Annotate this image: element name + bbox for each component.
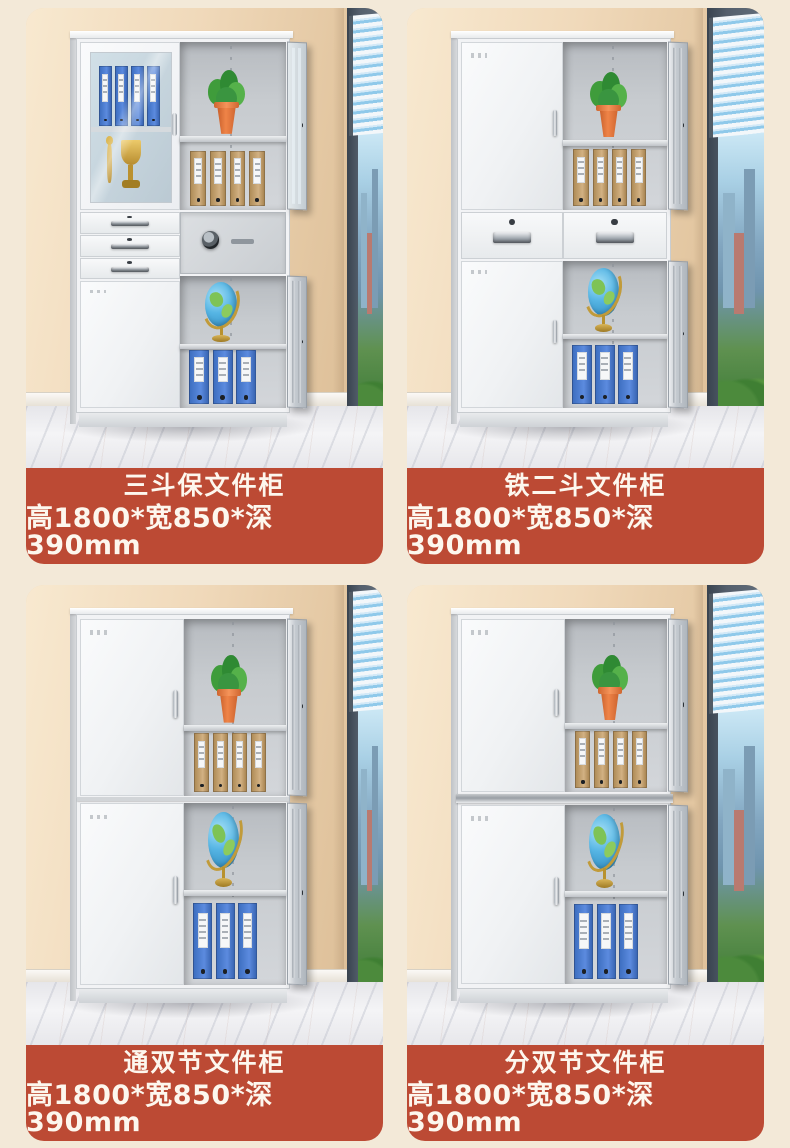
cabinet-open-compartment (184, 619, 286, 796)
safe-dial-icon (202, 231, 220, 249)
door-inner-ridge (298, 48, 301, 204)
binder-label (579, 738, 586, 765)
globe-land (208, 291, 224, 309)
binder-label-lines (237, 746, 242, 763)
binder-label (597, 157, 604, 183)
window-frame (347, 585, 383, 1004)
plant-foliage (592, 664, 611, 690)
trophy-base (122, 180, 140, 187)
binder-label-lines (256, 746, 261, 763)
globe-arc-stand (579, 807, 630, 876)
globe-land (591, 825, 608, 847)
wall (26, 585, 383, 1045)
file-binder-icon (99, 66, 112, 126)
door-inner-ridge (292, 48, 295, 204)
file-binder-icon (593, 149, 608, 206)
trophy-icon (104, 136, 149, 196)
file-binder-icon (232, 733, 247, 791)
door-inner-ridge (673, 811, 676, 978)
filing-cabinet (76, 608, 290, 1004)
binder-grommet (238, 784, 241, 787)
file-binder-icon (251, 733, 266, 791)
globe-icon (584, 268, 624, 333)
binder-label (577, 352, 587, 379)
city-building (372, 169, 378, 308)
plant-foliage (603, 655, 621, 684)
globe-land (222, 838, 237, 857)
potted-plant-icon (205, 70, 247, 134)
city-building (723, 769, 735, 885)
binder-grommet (581, 780, 584, 783)
binder-grommet (197, 395, 202, 400)
globe-stem (220, 326, 223, 336)
file-binder-icon (238, 903, 257, 979)
binder-label-lines (618, 743, 623, 760)
globe-land (590, 277, 606, 296)
product-title: 三斗保文件柜 (123, 473, 285, 498)
binder-label (102, 74, 108, 102)
window-city-view (358, 700, 383, 990)
globe-base (215, 878, 232, 887)
trophy-figurine-head (106, 136, 113, 144)
binder-label (217, 741, 224, 768)
binder-label-lines (598, 161, 603, 178)
binder-grommet (582, 969, 586, 973)
binder-grommet (637, 198, 640, 201)
binder-grommet (220, 395, 225, 400)
brand-mark-icon (90, 815, 106, 819)
lock-icon (301, 123, 303, 127)
plant-pot (598, 106, 620, 137)
cabinet-door-closed (80, 619, 184, 796)
cabinet-door-closed (80, 803, 184, 985)
binder-label-lines (243, 362, 250, 378)
window-blinds (349, 13, 383, 136)
baseboard (26, 392, 347, 406)
kraft-binders (190, 151, 269, 206)
product-label: 三斗保文件柜 高1800*宽850*深390mm (26, 468, 383, 564)
section-split-gap (456, 794, 673, 804)
binder-grommet (603, 395, 608, 400)
binder-label (600, 352, 610, 379)
cabinet-top-cap (70, 31, 294, 38)
cabinet-shelf (563, 140, 667, 146)
city-building (372, 746, 378, 885)
file-binder-icon (632, 731, 647, 788)
cabinet-door-open (287, 802, 307, 985)
city-trees (358, 931, 383, 989)
cabinet-shelf (563, 334, 667, 339)
cabinet-shelf (565, 891, 667, 897)
binder-grommet (638, 780, 641, 783)
binder-label-lines (603, 920, 610, 943)
file-binder-icon (572, 345, 591, 404)
cabinet-shelf (565, 723, 667, 729)
binder-grommet (599, 198, 602, 201)
cabinet-door-open (287, 42, 307, 211)
lock-icon (682, 702, 684, 706)
plant-foliage (230, 667, 247, 693)
product-dimensions: 高1800*宽850*深390mm (26, 505, 383, 559)
plant-pot-rim (596, 105, 621, 112)
door-inner-ridge (292, 280, 295, 403)
binder-label (198, 913, 208, 949)
cabinet-open-compartment (565, 805, 667, 985)
cabinet-plinth (79, 413, 287, 427)
file-binder-icon (190, 151, 206, 206)
baseboard (407, 969, 707, 983)
city-building (361, 769, 367, 885)
binder-label-lines (625, 920, 632, 943)
binder-label (601, 913, 611, 948)
cabinet-side-panel (70, 33, 76, 424)
cabinet-side-panel (451, 610, 457, 1001)
lock-icon (301, 339, 303, 342)
binder-grommet (120, 119, 123, 122)
cabinet-plinth (460, 413, 668, 427)
plant-pot (216, 103, 238, 134)
binder-label (194, 158, 202, 184)
cabinet-drawer (461, 212, 563, 259)
wall (26, 8, 383, 468)
cabinet-open-compartment (180, 42, 286, 210)
filing-cabinet (457, 608, 671, 1004)
cabinet-open-compartment (563, 261, 667, 408)
product-card: 铁二斗文件柜 高1800*宽850*深390mm (407, 8, 764, 565)
blue-binders (189, 350, 259, 404)
cabinet-top-cap (70, 608, 294, 615)
window-frame (347, 8, 383, 427)
binder-label (150, 74, 156, 102)
cabinet-drawer (80, 235, 180, 257)
blue-binders (193, 903, 260, 979)
keyhole-icon (127, 216, 133, 219)
product-card: 通双节文件柜 高1800*宽850*深390mm (26, 585, 383, 1142)
floor-marble-veins (407, 982, 764, 1044)
wall-corner-shadow (333, 8, 344, 413)
product-photo (26, 8, 383, 468)
door-handle (172, 113, 177, 136)
cabinet-floor-shadow (55, 987, 319, 1019)
binder-label-lines (580, 743, 585, 760)
floor-marble (26, 982, 383, 1044)
glass-reflection (91, 53, 171, 202)
binder-label-lines (103, 79, 107, 97)
globe-land (220, 302, 234, 318)
floor-marble (407, 406, 764, 468)
cabinet-plinth (79, 989, 287, 1003)
binder-label (616, 157, 623, 183)
window-blinds (709, 589, 764, 713)
plant-foliage (218, 673, 238, 697)
binder-grommet (236, 198, 240, 202)
cabinet-side-panel (70, 610, 76, 1001)
product-label: 铁二斗文件柜 高1800*宽850*深390mm (407, 468, 764, 564)
binder-label (624, 913, 634, 948)
cabinet-door-open (668, 804, 688, 985)
binder-label (577, 157, 584, 183)
file-binder-icon (213, 350, 233, 404)
plant-pot-rim (598, 687, 622, 694)
window-city-view (358, 123, 383, 413)
brand-mark-icon (90, 630, 106, 634)
binder-label (617, 738, 624, 765)
product-dimensions: 高1800*宽850*深390mm (26, 1082, 383, 1136)
drawer-handle (596, 232, 635, 244)
window-frame (707, 8, 764, 427)
city-building (744, 169, 755, 308)
binder-label (253, 158, 261, 184)
plant-pot-rim (214, 102, 239, 108)
globe-land (603, 839, 618, 858)
lock-icon (682, 332, 684, 336)
plant-foliage (211, 665, 230, 692)
city-building (723, 193, 735, 309)
binder-label (243, 913, 253, 949)
file-binder-icon (213, 733, 228, 791)
safe-handle (231, 239, 254, 243)
file-binder-icon (573, 149, 588, 206)
door-inner-ridge (673, 48, 676, 204)
binder-grommet (201, 969, 205, 973)
binder-grommet (619, 780, 622, 783)
binder-grommet (152, 119, 155, 122)
file-binder-icon (249, 151, 265, 206)
cabinet-open-compartment (563, 42, 667, 210)
cabinet-plinth (460, 989, 668, 1003)
product-photo (407, 585, 764, 1045)
binder-grommet (579, 198, 582, 201)
trophy-cup (121, 140, 141, 165)
door-inner-ridge (298, 809, 301, 978)
globe-sphere (205, 282, 237, 327)
binder-label-lines (119, 79, 123, 97)
plant-foliage (599, 672, 619, 696)
globe-sphere (588, 268, 620, 316)
binder-grommet (244, 395, 249, 400)
wall (407, 8, 764, 468)
kraft-binders (573, 149, 650, 206)
wall-corner-shadow (693, 8, 704, 413)
binder-label (579, 913, 589, 948)
cabinet-door-open (287, 618, 307, 796)
globe-base (212, 335, 230, 342)
door-inner-ridge (673, 625, 676, 786)
product-card: 三斗保文件柜 高1800*宽850*深390mm (26, 8, 383, 565)
plant-foliage (602, 72, 620, 101)
file-binder-icon (618, 345, 637, 404)
binder-grommet (600, 780, 603, 783)
shelf-peg-strip (613, 622, 615, 789)
lock-icon (301, 704, 303, 708)
cabinet-open-compartment (565, 619, 667, 792)
cabinet-shelf (184, 890, 286, 896)
binder-label (134, 74, 140, 102)
binder-grommet (200, 784, 203, 787)
binder-label-lines (580, 920, 587, 943)
file-binder-icon (210, 151, 226, 206)
file-binder-icon (595, 345, 614, 404)
binder-grommet (216, 198, 220, 202)
lock-icon (682, 891, 684, 896)
shelf-peg-strip (232, 622, 234, 792)
lock-icon (301, 890, 303, 895)
cabinet-door-open (668, 618, 688, 792)
file-binder-icon (216, 903, 235, 979)
globe-stem (603, 868, 606, 880)
binder-label-lines (578, 161, 583, 178)
door-inner-ridge (679, 48, 682, 204)
binder-label-lines (219, 362, 226, 378)
potted-plant-icon (588, 72, 630, 137)
city-trees (718, 931, 764, 989)
binder-label (241, 357, 251, 382)
plant-foliage (222, 655, 240, 685)
glass-shelf-line (91, 127, 171, 131)
brand-mark-icon (471, 630, 487, 634)
glass-pane (90, 52, 172, 203)
safe-compartment (180, 212, 286, 274)
file-binder-icon (631, 149, 646, 206)
product-card: 分双节文件柜 高1800*宽850*深390mm (407, 585, 764, 1142)
binder-label-lines (135, 79, 139, 97)
binder-label (255, 741, 262, 768)
cabinet-shelf (184, 725, 286, 731)
binder-grommet (219, 784, 222, 787)
file-binder-icon (619, 904, 638, 980)
cabinet-shelf (180, 344, 286, 349)
door-handle (553, 320, 557, 343)
cabinet-top-cap (451, 31, 675, 38)
keyhole-icon (611, 219, 617, 226)
file-binder-icon (612, 149, 627, 206)
trophy-figurine (107, 143, 111, 182)
binder-label-lines (215, 163, 220, 179)
globe-sphere (589, 814, 620, 870)
door-inner-ridge (679, 811, 682, 978)
potted-plant-icon (590, 655, 631, 721)
shelf-peg-strip (230, 46, 232, 207)
door-inner-ridge (673, 266, 676, 403)
trophy-stem (128, 165, 132, 181)
binder-label (218, 357, 228, 382)
cabinet-drawer (563, 212, 667, 259)
binder-label-lines (637, 743, 642, 760)
binder-label-lines (599, 743, 604, 760)
baseboard (407, 392, 707, 406)
binder-label (198, 741, 205, 768)
binder-grommet (626, 395, 631, 400)
floor-marble-veins (407, 406, 764, 468)
plant-foliage (590, 81, 609, 107)
floor-marble-veins (26, 406, 383, 468)
drawer-handle (493, 232, 531, 244)
globe-base (596, 879, 613, 888)
plant-foliage (216, 87, 237, 110)
file-binder-icon (230, 151, 246, 206)
cabinet-floor-shadow (436, 411, 700, 443)
shelf-peg-strip (613, 808, 615, 981)
binder-grommet (245, 969, 249, 973)
floor-marble (26, 406, 383, 468)
baseboard (26, 969, 347, 983)
product-grid: 三斗保文件柜 高1800*宽850*深390mm 铁二斗文件柜 高1800*宽8… (0, 0, 790, 1148)
binder-label (220, 913, 230, 949)
plant-pot (218, 690, 239, 722)
shelf-peg-strip (232, 806, 234, 980)
cabinet-door-closed (461, 805, 565, 985)
section-divider (77, 797, 289, 801)
cabinet-shelf (180, 136, 286, 142)
globe-stem (602, 315, 605, 325)
blue-binders (574, 904, 641, 980)
cabinet-body (76, 38, 290, 413)
city-building (744, 746, 755, 885)
binder-label-lines (222, 919, 229, 942)
binder-label (194, 357, 204, 382)
binder-label-lines (199, 919, 206, 942)
drawer-handle (111, 221, 148, 226)
product-photo (407, 8, 764, 468)
wall-corner-shadow (693, 585, 704, 990)
globe-base (595, 324, 612, 332)
binder-grommet (257, 784, 260, 787)
binder-label (635, 157, 642, 183)
kraft-binders (194, 733, 269, 791)
file-binder-icon (574, 904, 593, 980)
cabinet-drawer (80, 258, 180, 280)
plant-foliage (598, 89, 619, 113)
door-handle (554, 689, 559, 716)
city-trees (718, 355, 764, 413)
window-city-view (718, 123, 764, 413)
globe-icon (585, 814, 624, 890)
city-building (367, 810, 372, 891)
product-label: 通双节文件柜 高1800*宽850*深390mm (26, 1045, 383, 1141)
file-binder-icon (597, 904, 616, 980)
door-inner-ridge (292, 625, 295, 790)
globe-arc-stand (198, 805, 250, 875)
door-handle (553, 110, 557, 137)
binder-label-lines (218, 746, 223, 763)
file-binder-icon (193, 903, 212, 979)
binder-grommet (626, 969, 630, 973)
door-handle (554, 877, 559, 905)
cabinet-side-panel (451, 33, 457, 424)
door-handle (173, 690, 178, 718)
shelf-peg-strip (612, 264, 614, 405)
file-binder-icon (115, 66, 128, 126)
city-building (734, 233, 743, 314)
product-dimensions: 高1800*宽850*深390mm (407, 1082, 764, 1136)
window-frame (707, 585, 764, 1004)
cabinet-floor-shadow (436, 987, 700, 1019)
plant-foliage (611, 666, 628, 691)
plant-foliage (610, 84, 627, 109)
city-trees (358, 355, 383, 413)
keyhole-icon (127, 238, 133, 241)
floor-marble (407, 982, 764, 1044)
binder-label (234, 158, 242, 184)
product-label: 分双节文件柜 高1800*宽850*深390mm (407, 1045, 764, 1141)
binder-label-lines (636, 161, 641, 178)
cabinet-door-open (668, 42, 688, 211)
kraft-binders (575, 731, 650, 788)
brand-mark-icon (90, 290, 106, 293)
cabinet-drawer (80, 212, 180, 234)
binder-label (598, 738, 605, 765)
file-binder-icon (131, 66, 144, 126)
